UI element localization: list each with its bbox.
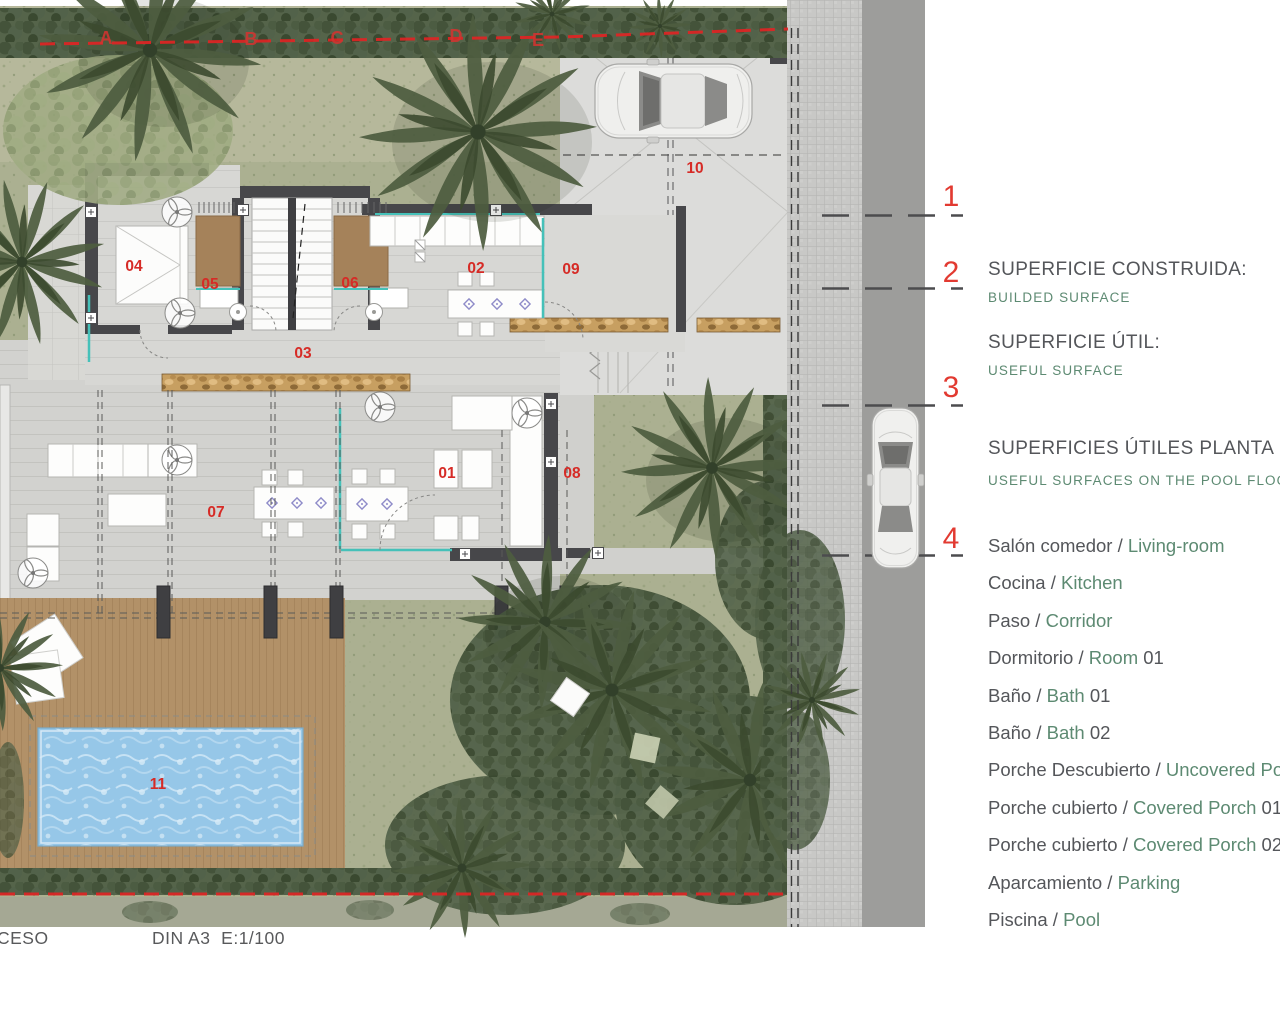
room-label-bath2: 06 xyxy=(341,275,359,292)
west-pergola-beam xyxy=(0,385,10,630)
street-car xyxy=(867,408,924,568)
grid-letter: D xyxy=(450,26,463,46)
pool xyxy=(38,728,303,846)
room-label-corridor: 03 xyxy=(294,345,312,362)
verge xyxy=(0,897,788,927)
room-label-porch1: 07 xyxy=(207,504,224,521)
room-label-living: 01 xyxy=(438,465,456,482)
grid-letter: B xyxy=(245,29,258,49)
room-label-kitchen: 02 xyxy=(467,260,484,277)
room-label-bath1: 05 xyxy=(201,276,219,293)
site-plan-drawing: A B C D E 01 02 03 04 05 06 07 08 09 10 … xyxy=(0,0,1280,1024)
room-label-pool: 11 xyxy=(150,776,167,793)
room-label-parking: 10 xyxy=(686,160,703,177)
grid-letter: A xyxy=(100,28,113,48)
grid-letter: E xyxy=(532,30,544,50)
room-label-porch2: 08 xyxy=(563,465,581,482)
site-plan-sheet: { "plan": { "room_labels": [ {"text":"01… xyxy=(0,0,1280,1024)
grid-letter: C xyxy=(331,28,344,48)
room-label-bedroom: 04 xyxy=(125,258,143,275)
room-label-entry: 09 xyxy=(562,261,580,278)
parked-car xyxy=(595,59,752,143)
